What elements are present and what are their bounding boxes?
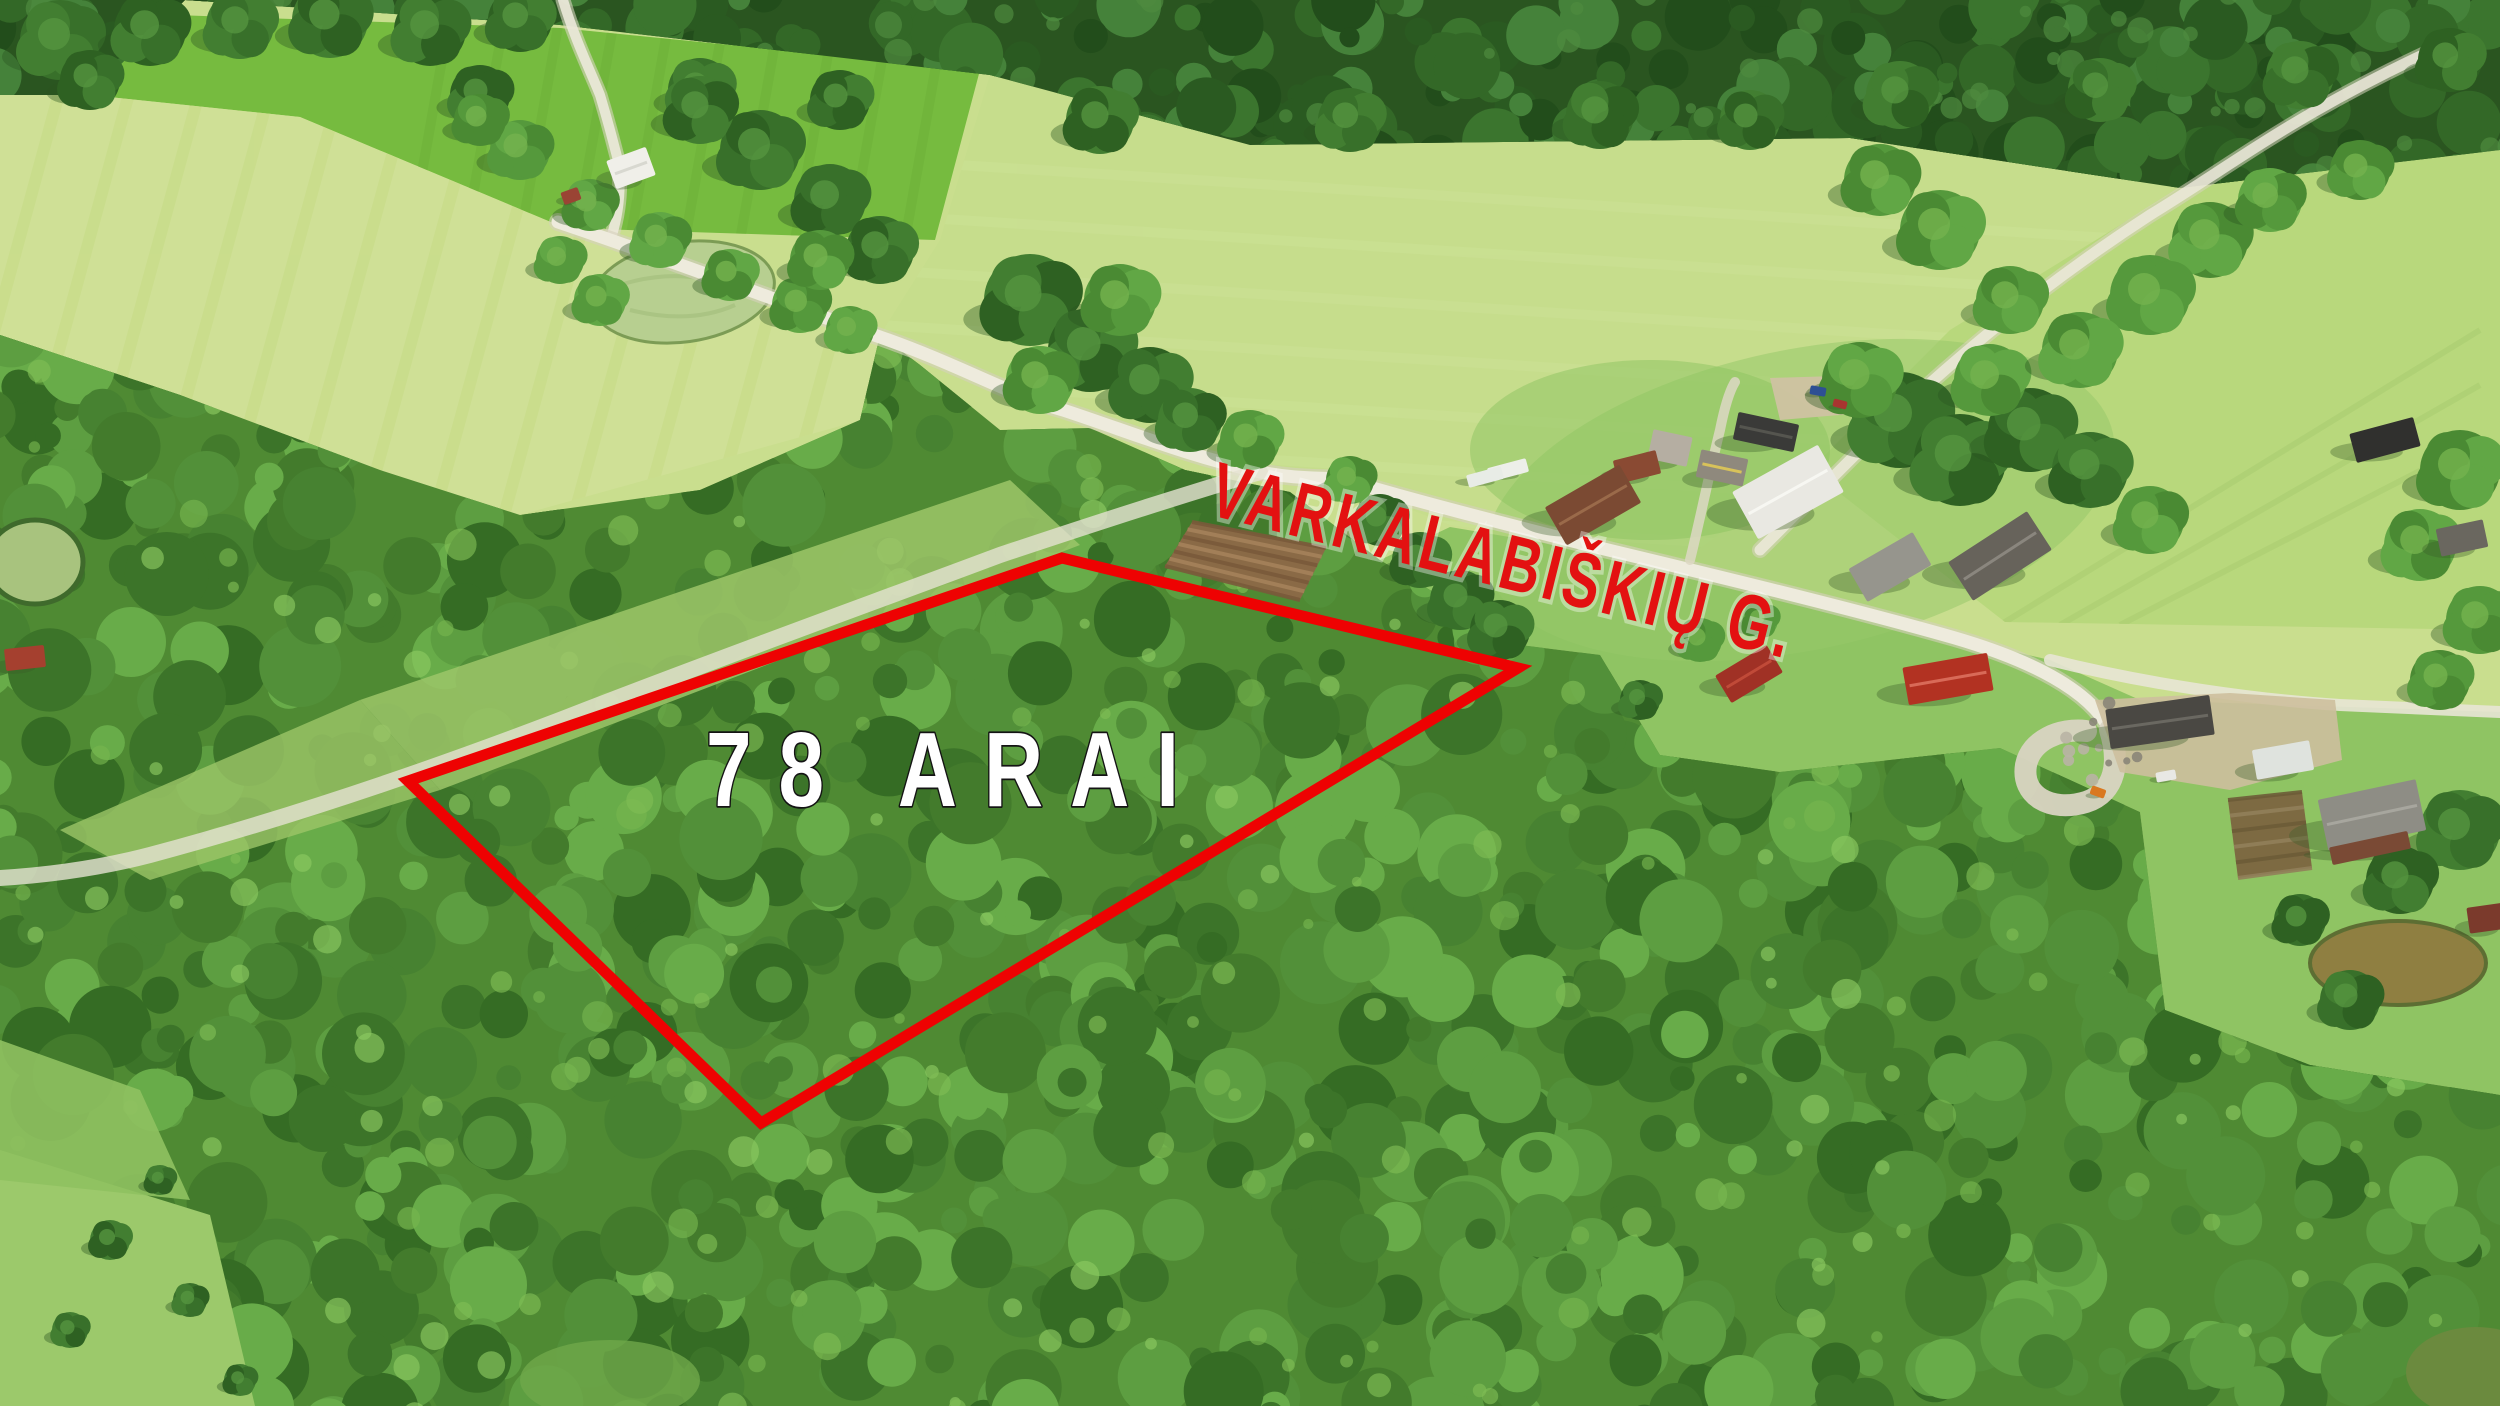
aerial-photo: VARKALABIŠKIŲ G. VARKALABIŠKIŲ G. 78 ARA… [0,0,2500,1406]
left-edge-pond [0,520,83,604]
aerial-photo-canvas: VARKALABIŠKIŲ G. VARKALABIŠKIŲ G. 78 ARA… [0,0,2500,1406]
plot-area-label: 78 ARAI [706,711,1206,829]
